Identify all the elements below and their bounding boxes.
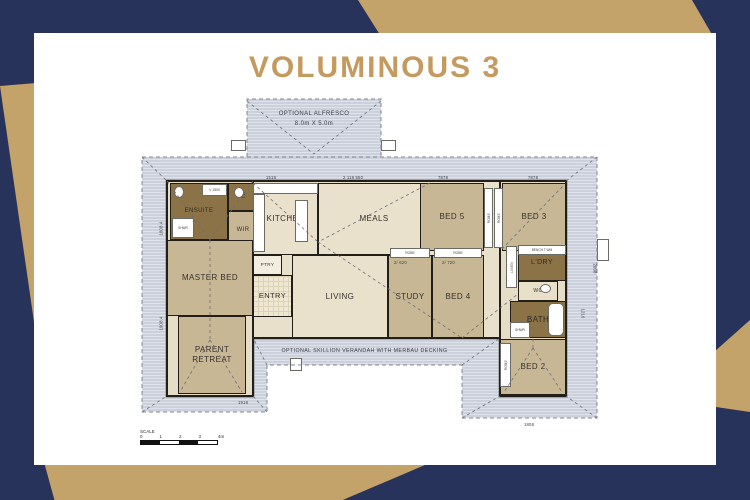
dimension-label: 1908.4 [159, 316, 164, 330]
dimension-label: 1216 [581, 308, 586, 318]
scale-tick: 1 [160, 434, 163, 439]
scale-numbers: 01234m [140, 434, 230, 440]
alfresco-note-line1: OPTIONAL ALFRESCO [247, 110, 381, 120]
scale-tick: 0 [140, 434, 143, 439]
dimension-label: 2 118 550 [343, 175, 363, 180]
floor-plan: ENSUITEWCWIRMASTER BEDPARENT RETREATKITC… [138, 96, 618, 460]
scale-tick: 3 [199, 434, 202, 439]
roof-outline [142, 157, 597, 418]
scale-tick: 4m [218, 434, 224, 439]
verandah-note: OPTIONAL SKILLION VERANDAH WITH MERBAU D… [267, 348, 462, 354]
dimension-label: 1518 [266, 175, 276, 180]
plan-title: VOLUMINOUS 3 [34, 51, 716, 85]
scale-tick: 2 [179, 434, 182, 439]
roof-lines-layer [138, 96, 618, 460]
floorplan-card: VOLUMINOUS 3 ENSUITEWCWIRMASTER BEDPAREN… [34, 33, 716, 465]
dimension-label: 2808 [593, 263, 598, 273]
roof-ridge-lines [142, 101, 597, 418]
alfresco-note-line2: 8.0m X 5.0m [247, 120, 381, 130]
dimension-label: 2/ 720 [442, 260, 455, 265]
dimension-label: 1808 [524, 422, 534, 427]
scale-bar-graphic [140, 440, 218, 445]
dimension-label: 7878 [438, 175, 448, 180]
dimension-label: 1918 [238, 400, 248, 405]
dimension-label: 7878 [528, 175, 538, 180]
dimension-label: 1808.4 [159, 221, 164, 235]
alfresco-note: OPTIONAL ALFRESCO 8.0m X 5.0m [247, 110, 381, 129]
scale-bar: SCALE 01234m [140, 429, 230, 445]
dimension-label: 2/ 620 [394, 260, 407, 265]
